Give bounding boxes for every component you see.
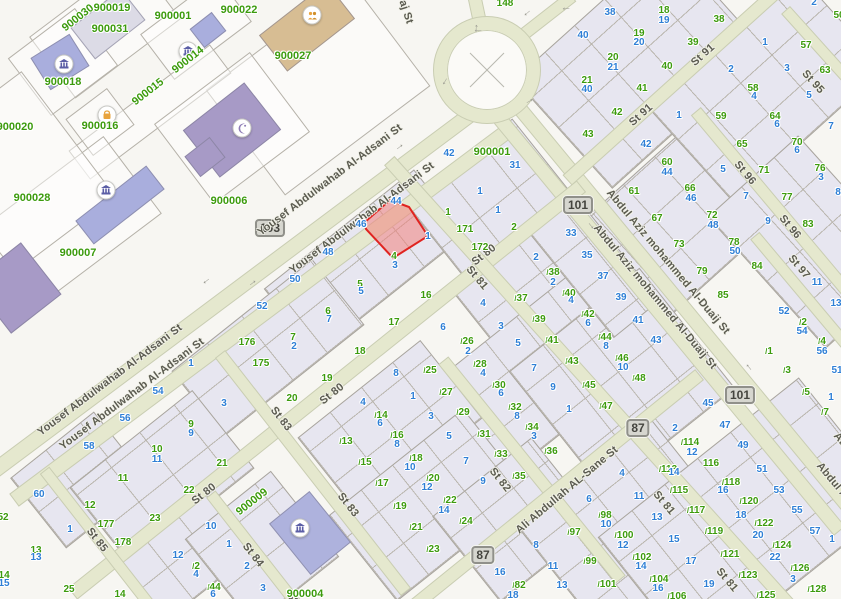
parcel-label-blue: 57 — [809, 527, 820, 537]
parcel-label-green: 73 — [673, 240, 684, 250]
parcel-label-blue: 10 — [600, 520, 611, 530]
parcel-label-blue: 52 — [256, 302, 267, 312]
parcel-label-blue: 58 — [83, 442, 94, 452]
parcel-label-blue: 8 — [835, 188, 841, 198]
parcel-label-green: 13 — [339, 437, 352, 447]
parcel-label-green: 900001 — [474, 147, 511, 157]
parcel-label-blue: 13 — [651, 513, 662, 523]
parcel-label-green: 148 — [497, 0, 514, 9]
parcel-label-green: 176 — [239, 338, 256, 348]
parcel-label-blue: 10 — [404, 463, 415, 473]
parcel-label-green: 40 — [661, 62, 672, 72]
parcel-label-blue: 19 — [703, 580, 714, 590]
parcel-label-blue: 16 — [652, 584, 663, 594]
parcel-label-blue: 49 — [737, 441, 748, 451]
parcel-label-blue: 14 — [635, 562, 646, 572]
parcel-label-blue: 3 — [498, 322, 504, 332]
parcel-label-blue: 45 — [702, 399, 713, 409]
one-way-arrow-icon: → — [561, 5, 572, 15]
parcel-label-green: 25 — [63, 585, 74, 595]
parcel-label-blue: 3 — [428, 412, 434, 422]
parcel-label-green: 37 — [514, 294, 527, 304]
parcel-label-blue: 8 — [603, 342, 609, 352]
parcel-label-green: 48 — [632, 374, 645, 384]
parcel-label-green: 124 — [773, 541, 792, 551]
parcel-label-green: 900022 — [221, 5, 258, 15]
parcel-label-blue: 55 — [791, 506, 802, 516]
parcel-label-green: 24 — [459, 517, 472, 527]
parcel-label-blue: 10 — [617, 363, 628, 373]
parcel-label-blue: 8 — [514, 412, 520, 422]
parcel-label-green: 41 — [636, 84, 647, 94]
parcel-label-green: 19 — [393, 502, 406, 512]
parcel-label-blue: 17 — [685, 557, 696, 567]
parcel-label-blue: 6 — [774, 120, 780, 130]
parcel-label-blue: 1 — [828, 393, 834, 403]
parcel-label-green: 50 — [833, 11, 841, 21]
parcel-label-blue: 12 — [421, 483, 432, 493]
parcel-label-blue: 14 — [438, 506, 449, 516]
parcel-label-green: 120 — [740, 497, 759, 507]
parcel-label-green: 900016 — [82, 121, 119, 131]
parcel-label-green: 59 — [715, 112, 726, 122]
parcel-label-blue: 6 — [377, 419, 383, 429]
parcel-label-blue: 35 — [581, 251, 592, 261]
parcel-label-blue: 1 — [410, 392, 416, 402]
parcel-label-green: 900018 — [45, 77, 82, 87]
parcel-label-green: 23 — [149, 514, 160, 524]
route-shield: 87 — [471, 546, 494, 564]
parcel-label-blue: 5 — [515, 339, 521, 349]
parcel-label-green: 177 — [98, 520, 115, 530]
parcel-label-blue: 44 — [390, 197, 401, 207]
parcel-label-green: 17 — [375, 479, 388, 489]
parcel-label-green: 5 — [802, 388, 810, 398]
parcel-label-green: 29 — [456, 408, 469, 418]
parcel-label-blue: 46 — [355, 220, 366, 230]
parcel-label-green: 125 — [757, 591, 776, 599]
parcel-label-blue: 3 — [531, 432, 537, 442]
parcel-label-green: 175 — [253, 359, 270, 369]
parcel-label-green: 116 — [703, 459, 719, 469]
parcel-label-green: 79 — [696, 267, 707, 277]
parcel-label-green: 21 — [409, 523, 422, 533]
parcel-label-green: 83 — [802, 220, 813, 230]
parcel-label-blue: 12 — [686, 448, 697, 458]
parcel-label-green: 33 — [494, 450, 507, 460]
parcel-label-blue: 43 — [650, 336, 661, 346]
street-name-label: aj St — [397, 0, 416, 25]
parcel-label-blue: 11 — [812, 278, 823, 288]
parcel-label-blue: 56 — [816, 347, 827, 357]
parcel-label-blue: 4 — [568, 296, 574, 306]
parcel-label-blue: 9 — [188, 429, 194, 439]
parcel-label-green: 900031 — [92, 24, 129, 34]
parcel-label-green: 17 — [388, 318, 399, 328]
parcel-label-blue: 5 — [806, 91, 812, 101]
parcel-label-green: 12 — [84, 501, 95, 511]
parcel-label-blue: 14 — [668, 468, 679, 478]
parcel-label-blue: 8 — [533, 541, 539, 551]
parcel-label-green: 122 — [755, 519, 774, 529]
parcel-label-blue: 2 — [533, 253, 539, 263]
parcel-label-blue: 19 — [658, 16, 669, 26]
parcel-label-blue: 51 — [756, 465, 767, 475]
parcel-label-green: 36 — [544, 447, 557, 457]
parcel-label-blue: 53 — [773, 486, 784, 496]
parcel-label-green: 25 — [423, 366, 436, 376]
route-shield: 101 — [563, 196, 593, 214]
parcel-label-green: 900007 — [60, 248, 97, 258]
parcel-label-green: 19 — [321, 374, 332, 384]
parcel-label-blue: 16 — [494, 568, 505, 578]
parcel-label-blue: 42 — [443, 149, 454, 159]
parcel-label-green: 117 — [687, 506, 705, 516]
parcel-label-blue: 2 — [811, 0, 817, 8]
parcel-label-green: 63 — [819, 66, 830, 76]
parcel-label-blue: 21 — [607, 63, 618, 73]
parcel-label-blue: 4 — [193, 570, 199, 580]
parcel-label-blue: 6 — [794, 146, 800, 156]
parcel-label-green: 11 — [118, 474, 129, 484]
parcel-label-green: 45 — [582, 381, 595, 391]
roundabout — [434, 17, 540, 123]
parcel-label-green: 101 — [598, 580, 617, 590]
parcel-label-blue: 8 — [394, 440, 400, 450]
parcel-label-blue: 6 — [586, 495, 592, 505]
parcel-label-green: 900028 — [14, 193, 51, 203]
parcel-label-green: 21 — [216, 459, 227, 469]
parcel-label-green: 16 — [420, 291, 431, 301]
parcel-label-blue: 51 — [831, 366, 841, 376]
parcel-label-blue: 5 — [446, 432, 452, 442]
parcel-label-green: 23 — [426, 545, 439, 555]
parcel-label-blue: 22 — [769, 553, 780, 563]
parcel-label-blue: 9 — [550, 383, 556, 393]
parcel-label-blue: 6 — [585, 319, 591, 329]
parcel-label-blue: 46 — [685, 194, 696, 204]
parcel-label-green: 31 — [477, 430, 490, 440]
parcel-label-green: 71 — [758, 166, 769, 176]
parcel-label-green: 22 — [183, 486, 194, 496]
parcel-label-blue: 10 — [205, 522, 216, 532]
parcel-label-green: 126 — [791, 564, 810, 574]
parcel-label-blue: 3 — [221, 399, 227, 409]
parcel-label-green: 119 — [705, 527, 723, 537]
parcel-label-blue: 18 — [507, 591, 518, 599]
parcel-label-green: 84 — [751, 262, 762, 272]
parcel-label-green: 3 — [783, 366, 791, 376]
one-way-arrow-icon: → — [470, 22, 481, 34]
parcel-label-blue: 48 — [322, 248, 333, 258]
parcel-label-blue: 13 — [30, 553, 41, 563]
bank-icon[interactable] — [97, 181, 116, 200]
parcel-label-green: 178 — [115, 538, 132, 548]
parcel-label-green: 128 — [808, 585, 827, 595]
parcel-label-blue: 40 — [581, 85, 592, 95]
parcel-label-green: 106 — [668, 592, 687, 599]
parcel-label-green: 20 — [286, 394, 297, 404]
parcel-label-blue: 38 — [604, 8, 615, 18]
parcel-label-blue: 2 — [244, 562, 250, 572]
parcel-label-blue: 8 — [393, 369, 399, 379]
parcel-label-green: 85 — [717, 291, 728, 301]
parcel-label-green: 41 — [545, 336, 558, 346]
parcel-label-green: 18 — [354, 347, 365, 357]
parcel-label-blue: 4 — [751, 92, 757, 102]
parcel-label-blue: 37 — [597, 272, 608, 282]
parcel-label-blue: 9 — [765, 217, 771, 227]
parcel-label-blue: 4 — [360, 398, 366, 408]
parcel-label-green: 900006 — [211, 196, 248, 206]
parcel-label-blue: 7 — [326, 315, 332, 325]
parcel-label-blue: 1 — [425, 232, 431, 242]
parcel-label-green: 900001 — [155, 11, 192, 21]
parcel-label-blue: 2 — [465, 347, 471, 357]
parcel-label-blue: 2 — [672, 424, 678, 434]
parcel-label-blue: 20 — [633, 38, 644, 48]
route-shield: 87 — [626, 419, 649, 437]
parcel-label-blue: 4 — [619, 469, 625, 479]
parcel-label-green: 14 — [114, 590, 125, 599]
parcel-label-blue: 1 — [495, 206, 501, 216]
parcel-label-blue: 1 — [477, 187, 483, 197]
parcel-label-green: 39 — [532, 315, 545, 325]
parcel-label-blue: 11 — [152, 455, 163, 465]
parcel-label-blue: 12 — [617, 541, 628, 551]
bank-icon[interactable] — [55, 55, 74, 74]
parcel-label-blue: 42 — [640, 140, 651, 150]
parcel-label-blue: 5 — [358, 287, 364, 297]
parcel-label-blue: 16 — [717, 486, 728, 496]
parcel-label-green: 43 — [582, 130, 593, 140]
parcel-label-blue: 6 — [440, 323, 446, 333]
parcel-label-green: 57 — [800, 41, 811, 51]
parcel-label-green: 121 — [721, 550, 740, 560]
parcel-label-green: 65 — [736, 140, 747, 150]
parcel-label-blue: 3 — [818, 173, 824, 183]
parcel-label-green: 15 — [358, 458, 371, 468]
parcel-label-blue: 7 — [828, 122, 834, 132]
parcel-label-blue: 48 — [707, 221, 718, 231]
parcel-label-green: 2 — [511, 223, 517, 233]
parcel-label-green: 97 — [567, 528, 580, 538]
parcel-label-blue: 47 — [719, 421, 730, 431]
parcel-label-blue: 2 — [550, 278, 556, 288]
parcel-label-blue: 13 — [830, 299, 841, 309]
parcel-label-blue: 2 — [291, 342, 297, 352]
parcel-label-green: 900020 — [0, 122, 33, 132]
parcel-label-green: 900004 — [287, 589, 324, 599]
parcel-label-green: 7 — [821, 408, 829, 418]
parcel-label-blue: 33 — [565, 229, 576, 239]
parcel-label-blue: 44 — [661, 168, 672, 178]
parcel-label-blue: 5 — [720, 165, 726, 175]
parcel-label-blue: 52 — [778, 307, 789, 317]
parcel-label-blue: 1 — [566, 405, 572, 415]
one-way-arrow-icon: → — [392, 139, 407, 154]
parcel-label-blue: 50 — [729, 247, 740, 257]
parcel-label-blue: 54 — [796, 327, 807, 337]
map-canvas[interactable]: →→→→→→→→→→→→1031011018787Yousef Abdulwah… — [0, 0, 841, 599]
parcel-label-green: 42 — [611, 108, 622, 118]
parcel-label-blue: 7 — [743, 192, 749, 202]
moon-icon[interactable] — [233, 119, 252, 138]
parcel-label-green: 1 — [445, 208, 451, 218]
parcel-label-green: 900019 — [94, 3, 131, 13]
parcel-label-blue: 12 — [172, 551, 183, 561]
parcel-label-green: 52 — [0, 513, 9, 523]
parcel-label-blue: 11 — [548, 562, 559, 572]
parcel-label-green: 67 — [651, 214, 662, 224]
parcel-label-green: 27 — [439, 388, 452, 398]
parcel-label-blue: 1 — [762, 38, 768, 48]
parcel-label-green: 39 — [687, 38, 698, 48]
parcel-label-blue: 1 — [188, 359, 194, 369]
shop-icon[interactable] — [303, 6, 322, 25]
parcel-label-green: 172 — [472, 243, 489, 253]
parcel-label-blue: 56 — [119, 414, 130, 424]
parcel-label-green: 35 — [512, 472, 525, 482]
parcel-label-blue: 3 — [260, 584, 266, 594]
parcel-label-green: 47 — [599, 402, 612, 412]
parcel-label-blue: 6 — [498, 389, 504, 399]
parcel-label-green: 900027 — [275, 51, 312, 61]
parcel-label-blue: 4 — [480, 299, 486, 309]
parcel-label-blue: 1 — [829, 535, 835, 545]
parcel-label-blue: 39 — [615, 293, 626, 303]
parcel-label-blue: 31 — [509, 161, 520, 171]
parcel-label-green: 99 — [583, 557, 596, 567]
parcel-label-blue: 18 — [735, 511, 746, 521]
parcel-label-blue: 3 — [784, 64, 790, 74]
parcel-label-blue: 41 — [632, 316, 643, 326]
parcel-label-green: 43 — [565, 357, 578, 367]
parcel-label-blue: 15 — [668, 535, 679, 545]
parcel-label-green: 61 — [628, 187, 639, 197]
parcel-label-green: 1 — [765, 347, 773, 357]
parcel-label-blue: 11 — [634, 492, 645, 502]
parcel-label-blue: 50 — [289, 275, 300, 285]
parcel-label-blue: 1 — [226, 540, 232, 550]
parcel-label-blue: 7 — [531, 364, 537, 374]
parcel-label-blue: 13 — [556, 581, 567, 591]
parcel-label-blue: 2 — [728, 65, 734, 75]
parcel-label-blue: 3 — [392, 261, 398, 271]
parcel-label-green: 123 — [739, 571, 758, 581]
one-way-arrow-icon: → — [200, 275, 215, 290]
parcel-label-green: 38 — [713, 15, 724, 25]
parcel-label-blue: 60 — [33, 490, 44, 500]
parcel-label-blue: 3 — [790, 575, 796, 585]
parcel-label-green: 77 — [781, 193, 792, 203]
route-shield: 101 — [725, 386, 755, 404]
parcel-label-green: 115 — [670, 486, 688, 496]
parcel-label-blue: 6 — [210, 590, 216, 599]
parcel-label-blue: 1 — [67, 525, 73, 535]
parcel-label-green: 171 — [457, 225, 474, 235]
parcel-label-blue: 15 — [0, 579, 10, 589]
bank-icon[interactable] — [291, 519, 310, 538]
parcel-label-blue: 7 — [463, 457, 469, 467]
parcel-label-blue: 20 — [752, 531, 763, 541]
parcel-label-blue: 40 — [577, 31, 588, 41]
parcel-label-blue: 1 — [676, 111, 682, 121]
parcel-label-blue: 54 — [152, 387, 163, 397]
parcel-label-blue: 4 — [480, 369, 486, 379]
parcel-label-blue: 9 — [480, 477, 486, 487]
